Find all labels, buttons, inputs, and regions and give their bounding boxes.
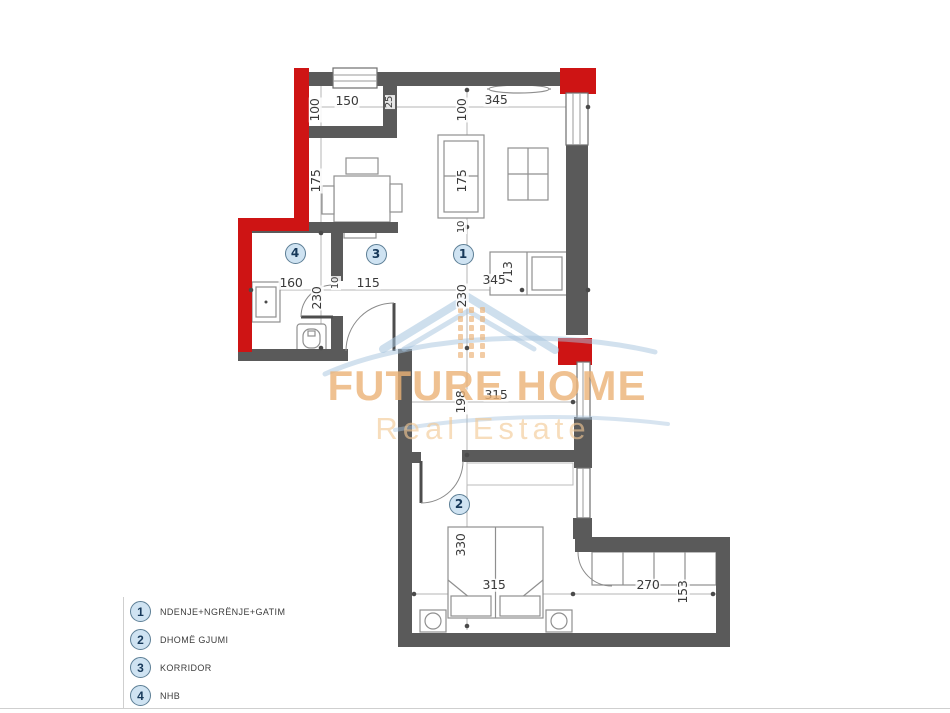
dimension-label: 175 [456,169,469,194]
window-right-upper [566,93,588,145]
room-marker-3: 3 [366,244,387,265]
legend-label: NDENJE+NGRËNJE+GATIM [160,607,285,617]
walls-red [238,68,596,365]
legend-label: KORRIDOR [160,663,212,673]
legend-item-4: 4NHB [130,685,285,706]
window-top [333,68,377,88]
dimension-label: 10 [457,220,467,234]
nightstand-left [420,610,446,632]
room-marker-4: 4 [285,243,306,264]
sink [252,282,280,322]
dimension-label: 100 [309,98,322,123]
page-edge-bottom [0,708,950,709]
page-edge-left [123,597,124,709]
nightstand-right [546,610,572,632]
coffee-table [508,148,548,200]
dimension-label: 270 [636,579,661,592]
watermark-title: FUTURE HOME [328,362,647,410]
legend-label: DHOMË GJUMI [160,635,228,645]
legend-item-3: 3KORRIDOR [130,657,285,678]
dimension-label: 345 [484,94,509,107]
watermark-subtitle: Real Estate [375,411,590,447]
dimension-label: 230 [311,286,324,311]
legend-item-2: 2DHOMË GJUMI [130,629,285,650]
wardrobe-bedroom [467,463,573,485]
legend-item-1: 1NDENJE+NGRËNJE+GATIM [130,601,285,622]
dimension-label: 175 [310,169,323,194]
dimension-label: 25 [385,95,395,109]
dimension-label: 345 [482,274,507,287]
room-marker-2: 2 [449,494,470,515]
legend: 1NDENJE+NGRËNJE+GATIM2DHOMË GJUMI3KORRID… [130,601,285,706]
legend-number: 3 [130,657,151,678]
dimension-label: 160 [279,277,304,290]
dimension-label: 100 [456,98,469,123]
legend-number: 2 [130,629,151,650]
legend-number: 1 [130,601,151,622]
legend-label: NHB [160,691,180,701]
floor-plan: 1001502510034517517510713345230160230101… [0,0,950,713]
room-marker-1: 1 [453,244,474,265]
dimension-label: 150 [335,95,360,108]
legend-number: 4 [130,685,151,706]
dimension-label: 230 [456,284,469,309]
window-right-mid-2 [577,468,590,518]
dimension-label: 315 [482,579,507,592]
dimension-label: 10 [331,276,341,290]
dimension-label: 115 [356,277,381,290]
dimension-label: 330 [455,533,468,558]
dimension-label: 153 [677,580,690,605]
